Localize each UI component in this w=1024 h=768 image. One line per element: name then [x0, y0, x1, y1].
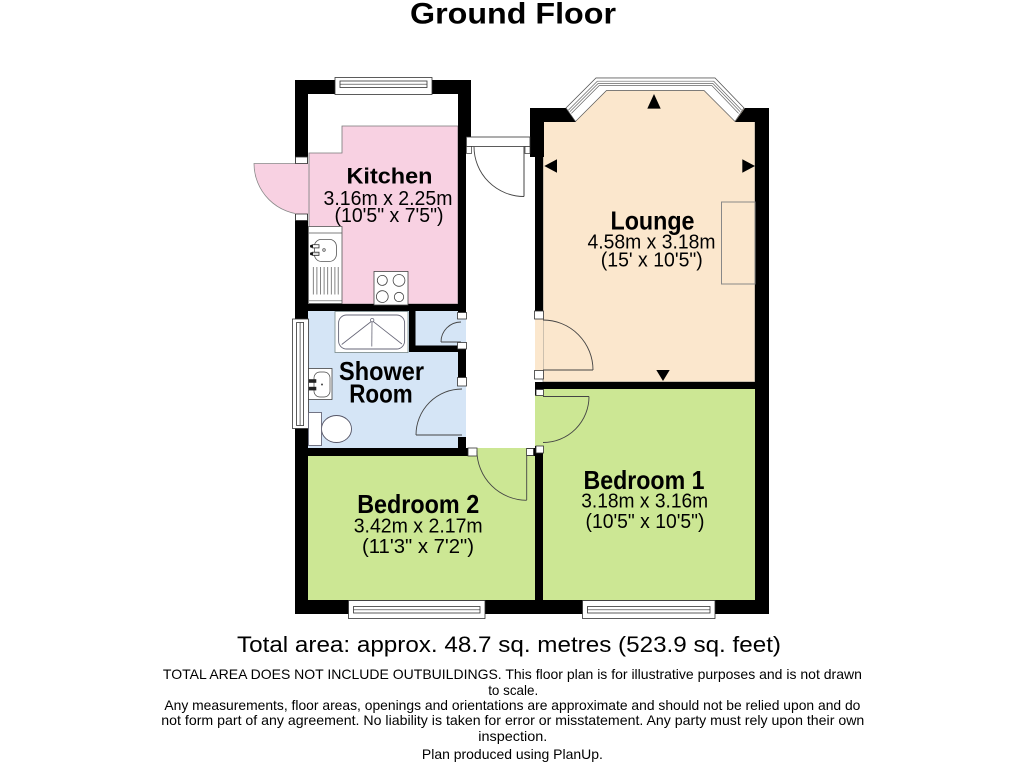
- svg-text:not form part of any agreement: not form part of any agreement. No liabi…: [161, 712, 864, 728]
- svg-text:(10'5" x 10'5"): (10'5" x 10'5"): [586, 511, 705, 533]
- svg-text:Kitchen: Kitchen: [347, 164, 433, 189]
- svg-text:Room: Room: [349, 378, 413, 408]
- svg-text:3.42m x 2.17m: 3.42m x 2.17m: [354, 516, 483, 538]
- svg-text:Any measurements, floor areas,: Any measurements, floor areas, openings …: [164, 697, 860, 713]
- svg-text:(15' x 10'5"): (15' x 10'5"): [601, 250, 703, 272]
- svg-text:3.18m x 3.16m: 3.18m x 3.16m: [581, 491, 708, 513]
- svg-text:(10'5" x 7'5"): (10'5" x 7'5"): [335, 205, 444, 227]
- svg-text:inspection.: inspection.: [478, 728, 547, 744]
- svg-text:Ground Floor: Ground Floor: [410, 0, 616, 31]
- svg-text:Total area: approx. 48.7 sq. m: Total area: approx. 48.7 sq. metres (523…: [237, 632, 781, 657]
- svg-text:TOTAL AREA DOES NOT INCLUDE OU: TOTAL AREA DOES NOT INCLUDE OUTBUILDINGS…: [163, 666, 862, 682]
- svg-text:(11'3" x 7'2"): (11'3" x 7'2"): [362, 536, 474, 558]
- svg-text:to scale.: to scale.: [488, 682, 538, 698]
- svg-text:Bedroom 2: Bedroom 2: [357, 489, 479, 519]
- svg-text:Plan produced using PlanUp.: Plan produced using PlanUp.: [422, 746, 603, 762]
